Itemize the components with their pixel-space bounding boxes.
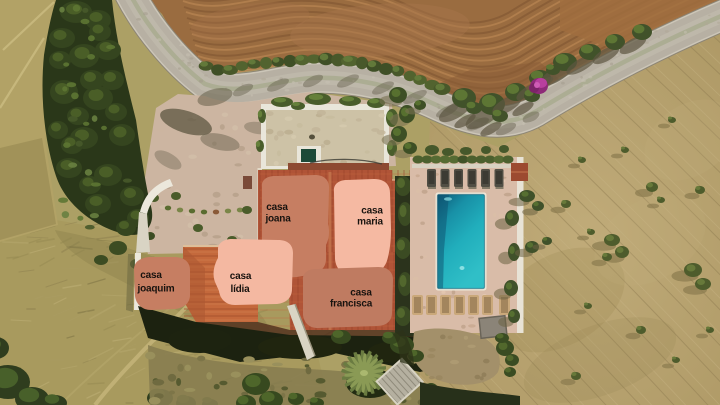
svg-text:francisca: francisca: [330, 299, 373, 310]
svg-text:joana: joana: [264, 214, 291, 225]
svg-text:casa: casa: [350, 288, 372, 299]
svg-text:joaquim: joaquim: [137, 284, 175, 295]
svg-text:casa: casa: [140, 270, 162, 281]
svg-text:casa: casa: [230, 271, 252, 282]
svg-text:lídia: lídia: [230, 284, 250, 295]
svg-text:maria: maria: [357, 217, 383, 228]
svg-text:casa: casa: [266, 202, 288, 213]
svg-text:casa: casa: [361, 206, 383, 217]
